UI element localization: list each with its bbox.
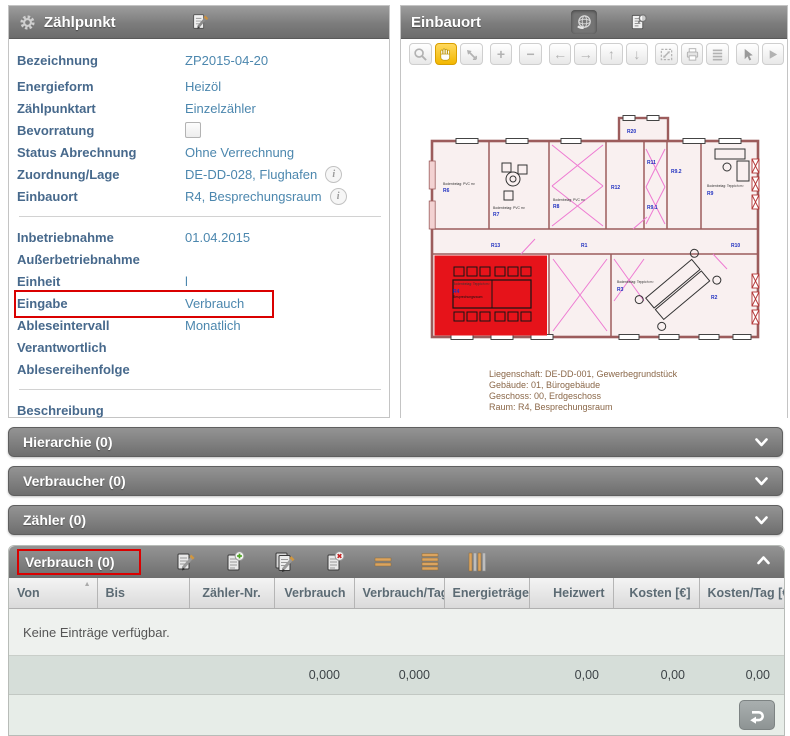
arrow-right-icon[interactable]: → bbox=[574, 43, 597, 65]
col-verbrauch-tag[interactable]: Verbrauch/Tag bbox=[354, 578, 444, 609]
field-einheit: Einheit l bbox=[17, 270, 383, 292]
divider bbox=[19, 389, 381, 390]
document-search-icon[interactable] bbox=[625, 10, 651, 34]
field-value: Monatlich bbox=[185, 318, 241, 333]
floorplan-drawing: Bodenbelag: PVC m² Bodenbelag: PVC m² Bo… bbox=[401, 69, 789, 420]
chevron-down-icon bbox=[755, 516, 768, 525]
panel-title: Zählpunkt bbox=[44, 14, 116, 31]
delete-icon[interactable] bbox=[324, 550, 346, 574]
zoom-icon[interactable] bbox=[409, 43, 432, 65]
room-label: R1 bbox=[581, 243, 588, 249]
accordion-verbraucher[interactable]: Verbraucher (0) bbox=[8, 466, 783, 496]
field-beschreibung: Beschreibung bbox=[17, 399, 383, 421]
room-sub-label: Bodenbelag: PVC m² bbox=[493, 206, 526, 210]
field-label: Bevorratung bbox=[17, 123, 185, 138]
field-value: l bbox=[185, 274, 188, 289]
empty-message: Keine Einträge verfügbar. bbox=[9, 609, 784, 656]
panel-title: Einbauort bbox=[411, 14, 481, 31]
field-label: Ablesereihenfolge bbox=[17, 362, 185, 377]
add-icon[interactable] bbox=[224, 550, 246, 574]
col-energietraeger[interactable]: Energieträger bbox=[444, 578, 529, 609]
caption-geschoss: Geschoss: 00, Erdgeschoss bbox=[489, 391, 677, 402]
previous-extent-icon[interactable] bbox=[460, 43, 483, 65]
globe-hand-icon[interactable] bbox=[571, 10, 597, 34]
chevron-down-icon bbox=[755, 477, 768, 486]
page: Zählpunkt Bezeichnung ZP2015-04-20 Energ… bbox=[0, 0, 790, 736]
zoom-out-icon[interactable]: − bbox=[519, 43, 542, 65]
arrow-left-icon[interactable]: ← bbox=[549, 43, 572, 65]
verbrauch-toolbar bbox=[175, 550, 489, 574]
layers-icon[interactable] bbox=[706, 43, 729, 65]
caption-raum: Raum: R4, Besprechungsraum bbox=[489, 402, 677, 413]
field-value: Einzelzähler bbox=[185, 101, 256, 116]
columns-icon[interactable] bbox=[467, 552, 489, 572]
field-label: Verantwortlich bbox=[17, 340, 185, 355]
room-label: R10 bbox=[731, 243, 740, 249]
field-status-abrechnung: Status Abrechnung Ohne Verrechnung bbox=[17, 141, 383, 163]
field-zuordnung-lage: Zuordnung/Lage DE-DD-028, Flughafeni bbox=[17, 163, 383, 185]
rows-2-icon[interactable] bbox=[373, 554, 393, 570]
select-cursor-icon[interactable] bbox=[736, 43, 759, 65]
info-icon[interactable]: i bbox=[325, 166, 342, 183]
field-eingabe: Eingabe Verbrauch bbox=[17, 292, 383, 314]
undo-button[interactable] bbox=[739, 700, 775, 730]
play-icon[interactable] bbox=[762, 43, 785, 65]
table-header-row: Von▲ Bis Zähler-Nr. Verbrauch Verbrauch/… bbox=[9, 578, 784, 609]
room-label: R6 bbox=[443, 188, 450, 194]
verbrauch-section: Verbrauch (0) Von▲ Bis Zähler-Nr. bbox=[8, 545, 785, 736]
field-ablesereihenfolge: Ablesereihenfolge bbox=[17, 358, 383, 380]
field-einbauort: Einbauort R4, Besprechungsraumi bbox=[17, 185, 383, 207]
sort-asc-icon: ▲ bbox=[84, 581, 91, 588]
field-label: Zählpunktart bbox=[17, 101, 185, 116]
room-label: R7 bbox=[493, 212, 500, 218]
field-value: 01.04.2015 bbox=[185, 230, 250, 245]
room-label: R2 bbox=[711, 295, 718, 301]
field-bezeichnung: Bezeichnung ZP2015-04-20 bbox=[17, 49, 383, 71]
col-kosten[interactable]: Kosten [€] bbox=[613, 578, 699, 609]
field-ableseintervall: Ableseintervall Monatlich bbox=[17, 314, 383, 336]
room-sub-label: Bodenbelag: Teppich m² bbox=[617, 280, 654, 284]
field-value: Ohne Verrechnung bbox=[185, 145, 294, 160]
einbauort-panel: Einbauort + − ← → ↑ ↓ bbox=[400, 5, 788, 418]
total-heizwert: 0,00 bbox=[529, 656, 613, 695]
room-label: R9 bbox=[707, 191, 714, 197]
room-sub-label: Bodenbelag: PVC m² bbox=[553, 198, 586, 202]
field-verantwortlich: Verantwortlich bbox=[17, 336, 383, 358]
arrow-up-icon[interactable]: ↑ bbox=[600, 43, 623, 65]
rows-4-icon[interactable] bbox=[420, 552, 440, 572]
field-inbetriebnahme: Inbetriebnahme 01.04.2015 bbox=[17, 226, 383, 248]
room-sub-label: Bodenbelag: PVC m² bbox=[443, 182, 476, 186]
field-label: Ableseintervall bbox=[17, 318, 185, 333]
room-label: R9.2 bbox=[671, 169, 682, 175]
info-icon[interactable]: i bbox=[330, 188, 347, 205]
field-label: Status Abrechnung bbox=[17, 145, 185, 160]
room-label: R8 bbox=[553, 204, 560, 210]
room-label: R11 bbox=[647, 160, 656, 166]
floorplan-area[interactable]: Bodenbelag: PVC m² Bodenbelag: PVC m² Bo… bbox=[401, 69, 787, 420]
field-label: Energieform bbox=[17, 79, 185, 94]
print-icon[interactable] bbox=[681, 43, 704, 65]
col-bis[interactable]: Bis bbox=[97, 578, 189, 609]
full-extent-icon[interactable] bbox=[655, 43, 678, 65]
verbrauch-title: Verbrauch (0) bbox=[17, 549, 141, 575]
gear-icon bbox=[19, 14, 36, 31]
field-label: Außerbetriebnahme bbox=[17, 252, 185, 267]
verbrauch-header[interactable]: Verbrauch (0) bbox=[9, 546, 784, 578]
total-verbrauch-tag: 0,000 bbox=[354, 656, 444, 695]
field-value: ZP2015-04-20 bbox=[185, 53, 268, 68]
caption-gebaeude: Gebäude: 01, Bürogebäude bbox=[489, 380, 677, 391]
chevron-up-icon bbox=[757, 556, 770, 565]
room-label: R13 bbox=[491, 243, 500, 249]
field-label: Einbauort bbox=[17, 189, 185, 204]
map-toolbar: + − ← → ↑ ↓ bbox=[401, 39, 787, 69]
col-kosten-tag[interactable]: Kosten/Tag [€] bbox=[699, 578, 784, 609]
field-bevorratung: Bevorratung bbox=[17, 119, 383, 141]
col-verbrauch[interactable]: Verbrauch bbox=[274, 578, 354, 609]
room-label: R3 bbox=[617, 287, 624, 293]
room-label: R20 bbox=[627, 129, 636, 135]
bevorratung-checkbox[interactable] bbox=[185, 122, 201, 138]
col-zaehler-nr[interactable]: Zähler-Nr. bbox=[189, 578, 274, 609]
totals-row: 0,000 0,000 0,00 0,00 0,00 bbox=[9, 656, 784, 695]
field-label: Zuordnung/Lage bbox=[17, 167, 185, 182]
field-value: Heizöl bbox=[185, 79, 221, 94]
zoom-in-icon[interactable]: + bbox=[490, 43, 513, 65]
caption-liegenschaft: Liegenschaft: DE-DD-001, Gewerbegrundstü… bbox=[489, 369, 677, 380]
field-value: R4, Besprechungsraum bbox=[185, 189, 322, 204]
empty-row: Keine Einträge verfügbar. bbox=[9, 609, 784, 656]
highlighted-room-r4 bbox=[435, 256, 548, 336]
field-value: Verbrauch bbox=[185, 296, 244, 311]
verbrauch-table: Von▲ Bis Zähler-Nr. Verbrauch Verbrauch/… bbox=[9, 578, 784, 735]
field-value: DE-DD-028, Flughafen bbox=[185, 167, 317, 182]
zaehlpunkt-panel: Zählpunkt Bezeichnung ZP2015-04-20 Energ… bbox=[8, 5, 390, 418]
total-kosten-tag: 0,00 bbox=[699, 656, 784, 695]
field-energieform: Energieform Heizöl bbox=[17, 75, 383, 97]
field-ausserbetriebnahme: Außerbetriebnahme bbox=[17, 248, 383, 270]
accordion-label: Zähler (0) bbox=[23, 512, 755, 528]
edit-multi-icon[interactable] bbox=[273, 550, 297, 574]
zaehlpunkt-form: Bezeichnung ZP2015-04-20 Energieform Hei… bbox=[9, 39, 389, 421]
room-sub-label: Bodenbelag: Teppich m² bbox=[453, 282, 490, 286]
field-label: Bezeichnung bbox=[17, 53, 185, 68]
zaehlpunkt-header: Zählpunkt bbox=[9, 6, 389, 39]
edit-document-icon[interactable] bbox=[187, 10, 213, 34]
einbauort-header: Einbauort bbox=[401, 6, 787, 39]
accordion-label: Hierarchie (0) bbox=[23, 434, 755, 450]
room-sub-label: Besprechungsraum bbox=[453, 295, 483, 299]
col-von[interactable]: Von▲ bbox=[9, 578, 97, 609]
accordion-label: Verbraucher (0) bbox=[23, 473, 755, 489]
accordion-zaehler[interactable]: Zähler (0) bbox=[8, 505, 783, 535]
footer-row bbox=[9, 695, 784, 736]
total-verbrauch: 0,000 bbox=[274, 656, 354, 695]
total-kosten: 0,00 bbox=[613, 656, 699, 695]
pan-hand-icon[interactable] bbox=[435, 43, 458, 65]
field-label: Inbetriebnahme bbox=[17, 230, 185, 245]
field-label: Beschreibung bbox=[17, 403, 185, 418]
divider bbox=[19, 216, 381, 217]
room-label: R9.1 bbox=[647, 205, 658, 211]
chevron-down-icon bbox=[755, 438, 768, 447]
room-label: R12 bbox=[611, 185, 620, 191]
field-zaehlpunktart: Zählpunktart Einzelzähler bbox=[17, 97, 383, 119]
plan-caption: Liegenschaft: DE-DD-001, Gewerbegrundstü… bbox=[489, 369, 677, 413]
field-label: Eingabe bbox=[17, 296, 185, 311]
top-panels: Zählpunkt Bezeichnung ZP2015-04-20 Energ… bbox=[8, 5, 788, 418]
field-label: Einheit bbox=[17, 274, 185, 289]
accordion-hierarchie[interactable]: Hierarchie (0) bbox=[8, 427, 783, 457]
room-sub-label: Bodenbelag: Teppich m² bbox=[707, 184, 744, 188]
col-heizwert[interactable]: Heizwert bbox=[529, 578, 613, 609]
arrow-down-icon[interactable]: ↓ bbox=[626, 43, 649, 65]
edit-icon[interactable] bbox=[175, 550, 197, 574]
